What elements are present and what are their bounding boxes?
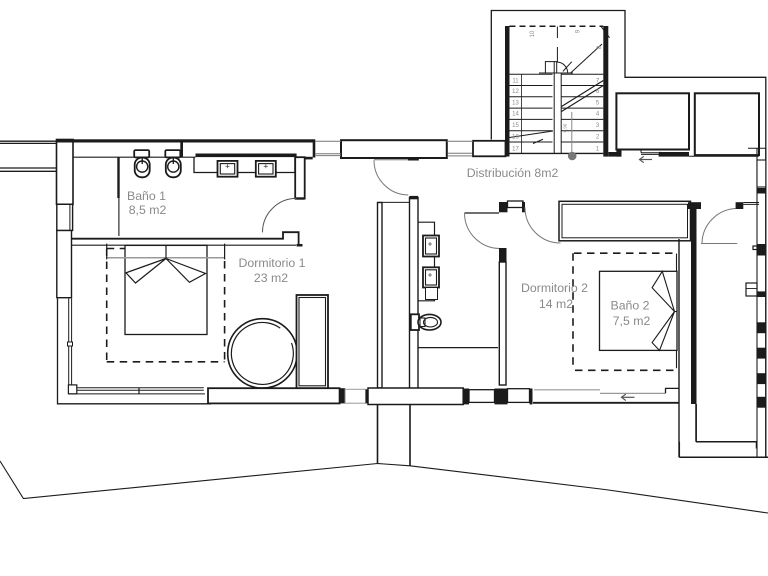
svg-text:8,5 m2: 8,5 m2: [129, 203, 167, 217]
svg-text:Dormitorio 1: Dormitorio 1: [239, 256, 306, 270]
svg-text:Dormitorio 2: Dormitorio 2: [521, 281, 588, 295]
svg-text:14: 14: [512, 112, 519, 118]
svg-text:Baño 1: Baño 1: [127, 189, 166, 203]
svg-text:10: 10: [530, 30, 536, 37]
svg-text:14 m2: 14 m2: [539, 297, 573, 311]
svg-text:23 m2: 23 m2: [254, 271, 288, 285]
svg-text:15: 15: [512, 123, 519, 129]
svg-text:11: 11: [512, 78, 519, 84]
svg-text:Baño 2: Baño 2: [611, 299, 650, 313]
svg-text:Distribución 8m2: Distribución 8m2: [467, 166, 559, 180]
svg-text:7,5 m2: 7,5 m2: [613, 314, 651, 328]
svg-text:17: 17: [512, 147, 519, 153]
svg-text:0,96: 0,96: [563, 123, 568, 132]
svg-text:12: 12: [512, 89, 519, 95]
svg-text:13: 13: [512, 100, 519, 106]
svg-text:16: 16: [512, 134, 519, 140]
